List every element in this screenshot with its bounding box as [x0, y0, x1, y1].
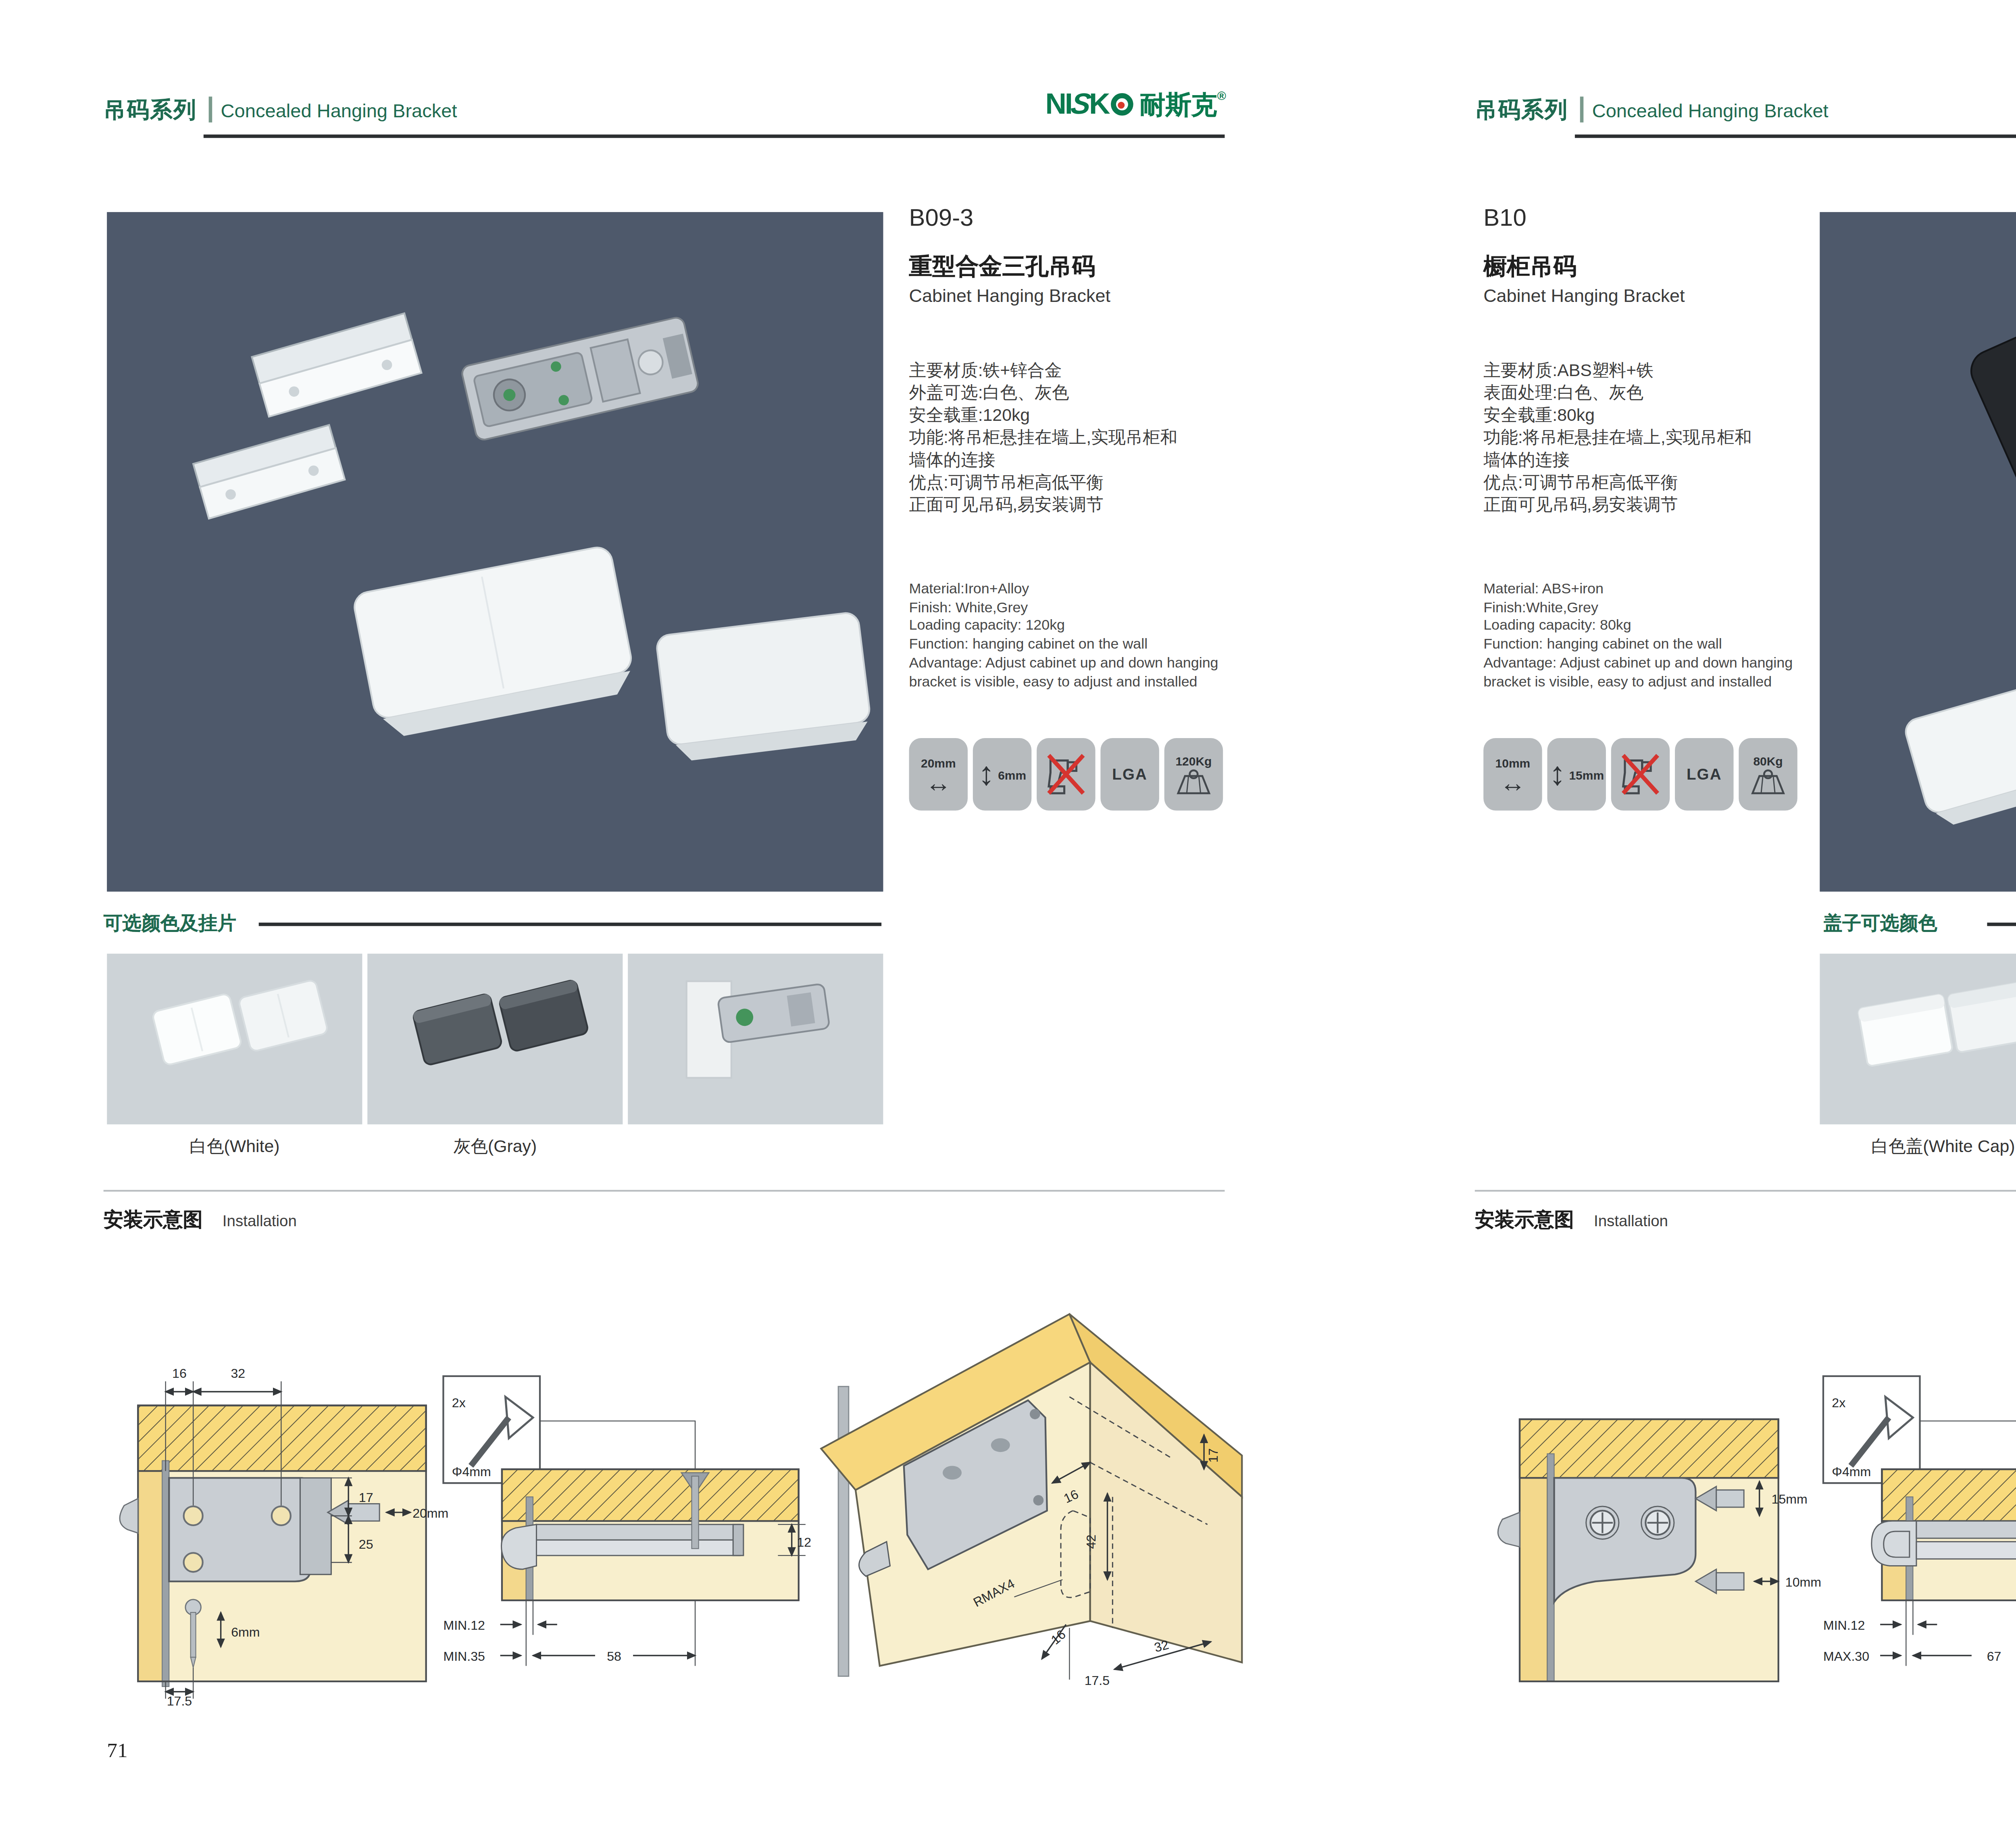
spec-line: bracket is visible, easy to adjust and i…: [1483, 672, 1793, 690]
spec-line: Finish: White,Grey: [909, 598, 1218, 616]
load-value: 80Kg: [1753, 755, 1783, 767]
specs-zh: 主要材质:铁+锌合金 外盖可选:白色、灰色 安全载重:120kg 功能:将吊柜悬…: [909, 359, 1178, 516]
install-diagram-front-section: 15mm 10mm: [1478, 1319, 1832, 1708]
page-number: 71: [107, 1738, 127, 1764]
color-swatch-gray: [367, 954, 623, 1125]
icon-tile-no-drill: [1037, 738, 1095, 811]
lga-cert-label: LGA: [1687, 765, 1722, 783]
spec-line: Finish:White,Grey: [1483, 598, 1793, 616]
color-swatch-bracket: [628, 954, 883, 1125]
swatch-label: 灰色(Gray): [367, 1135, 623, 1159]
spec-line: 功能:将吊柜悬挂在墙上,实现吊柜和: [1483, 426, 1752, 449]
lga-cert-label: LGA: [1112, 765, 1148, 783]
width-value: 20mm: [921, 756, 956, 768]
spec-line: Loading capacity: 120kg: [909, 616, 1218, 635]
colors-section-title: 盖子可选颜色: [1823, 911, 1937, 936]
series-title: 吊码系列: [104, 95, 197, 126]
svg-text:MAX.30: MAX.30: [1823, 1649, 1869, 1664]
swatch-label: 白色盖(White Cap): [1820, 1135, 2016, 1159]
specs-en: Material: ABS+iron Finish:White,Grey Loa…: [1483, 579, 1793, 690]
product-photo-illustration: [1820, 212, 2016, 892]
product-code: B09-3: [909, 204, 974, 231]
svg-text:58: 58: [607, 1649, 621, 1664]
wall-pole: [838, 1387, 849, 1676]
svg-text:MIN.12: MIN.12: [1823, 1618, 1865, 1633]
catalog-page-left: 吊码系列 Concealed Hanging Bracket NISK耐斯克®: [0, 0, 1371, 1847]
horizontal-arrow-icon: ↔: [1500, 770, 1526, 792]
color-swatch-white: [107, 954, 362, 1125]
spec-line: Advantage: Adjust cabinet up and down ha…: [909, 653, 1218, 672]
section-divider: [104, 1190, 1225, 1192]
spec-line: 墙体的连接: [1483, 448, 1752, 471]
install-diagram-front-section: 16 32 17 25 20mm 6mm 17.5: [107, 1319, 452, 1708]
spec-line: Advantage: Adjust cabinet up and down ha…: [1483, 653, 1793, 672]
icon-tile-height: ↕ 6mm: [973, 738, 1031, 811]
svg-text:10mm: 10mm: [1785, 1575, 1821, 1589]
spec-line: 安全载重:120kg: [909, 404, 1178, 426]
spec-line: 表面处理:白色、灰色: [1483, 381, 1752, 404]
product-title-en: Cabinet Hanging Bracket: [1483, 285, 1685, 305]
svg-text:Φ4mm: Φ4mm: [1832, 1464, 1871, 1479]
product-title-en: Cabinet Hanging Bracket: [909, 285, 1110, 305]
icon-tile-width: 20mm ↔: [909, 738, 968, 811]
svg-text:2x: 2x: [452, 1396, 466, 1410]
svg-text:2x: 2x: [1832, 1396, 1845, 1410]
svg-text:17: 17: [359, 1490, 373, 1505]
spec-line: bracket is visible, easy to adjust and i…: [909, 672, 1218, 690]
spec-line: Loading capacity: 80kg: [1483, 616, 1793, 635]
screw-spec-box: 2x Φ4mm: [1823, 1376, 1920, 1483]
leader-line: [540, 1421, 695, 1469]
svg-text:Φ4mm: Φ4mm: [452, 1464, 491, 1479]
leader-line: [1920, 1421, 2016, 1469]
height-value: 15mm: [1569, 768, 1604, 780]
product-photo-panel: [1820, 212, 2016, 892]
colors-section-title: 可选颜色及挂片: [104, 911, 236, 936]
svg-text:17.5: 17.5: [1085, 1673, 1110, 1688]
spec-line: 正面可见吊码,易安装调节: [909, 493, 1178, 516]
icon-tile-cert: LGA: [1100, 738, 1159, 811]
icon-tile-width: 10mm ↔: [1483, 738, 1542, 811]
specs-en: Material:Iron+Alloy Finish: White,Grey L…: [909, 579, 1218, 690]
svg-text:42: 42: [1084, 1535, 1098, 1549]
svg-text:16: 16: [172, 1366, 187, 1381]
svg-text:17.5: 17.5: [167, 1694, 192, 1707]
section-divider: [1475, 1190, 2016, 1192]
spec-line: Material: ABS+iron: [1483, 579, 1793, 598]
icon-tile-load: 120Kg: [1164, 738, 1223, 811]
icon-tile-load: 80Kg: [1739, 738, 1797, 811]
install-title-zh: 安装示意图: [1475, 1207, 1574, 1233]
product-photo-panel: [107, 212, 883, 892]
spec-line: 主要材质:铁+锌合金: [909, 359, 1178, 381]
icon-tile-no-drill: [1611, 738, 1670, 811]
spec-line: Function: hanging cabinet on the wall: [909, 635, 1218, 653]
hanger-hook: [1498, 1512, 1520, 1547]
svg-text:17: 17: [1206, 1448, 1220, 1463]
header-divider-bar: [209, 97, 211, 123]
load-value: 120Kg: [1175, 755, 1212, 767]
color-swatch-white-cap: [1820, 954, 2016, 1125]
install-diagram-side-section: 2x Φ4mm: [1820, 1359, 2016, 1678]
hanging-rail: [1872, 1521, 2016, 1566]
product-title-zh: 橱柜吊码: [1483, 252, 1577, 283]
screw-spec-box: 2x Φ4mm: [443, 1376, 540, 1483]
colors-section-rule: [259, 923, 881, 926]
white-caps-illustration: [107, 954, 362, 1125]
white-cover-2: [656, 612, 873, 763]
weight-icon: [1749, 768, 1787, 794]
swatch-label: 白色(White): [107, 1135, 362, 1159]
spec-line: 安全载重:80kg: [1483, 404, 1752, 426]
install-title-en: Installation: [223, 1211, 297, 1229]
spec-line: 优点:可调节吊柜高低平衡: [909, 471, 1178, 493]
white-caps-illustration: [1820, 954, 2016, 1125]
product-photo-illustration: [107, 212, 883, 892]
svg-text:15mm: 15mm: [1772, 1492, 1808, 1507]
no-drill-icon: [1620, 752, 1661, 797]
product-title-zh: 重型合金三孔吊码: [909, 252, 1095, 283]
svg-text:32: 32: [231, 1366, 246, 1381]
icon-tile-height: ↕ 15mm: [1547, 738, 1606, 811]
svg-text:12: 12: [797, 1535, 810, 1550]
spec-line: 功能:将吊柜悬挂在墙上,实现吊柜和: [909, 426, 1178, 449]
spec-line: 优点:可调节吊柜高低平衡: [1483, 471, 1752, 493]
height-value: 6mm: [998, 768, 1026, 780]
svg-text:67: 67: [1987, 1649, 2001, 1664]
spec-line: 外盖可选:白色、灰色: [909, 381, 1178, 404]
feature-icons: 20mm ↔ ↕ 6mm LGA: [909, 738, 1223, 811]
colors-section-rule: [1987, 923, 2016, 926]
svg-text:MIN.35: MIN.35: [443, 1649, 485, 1664]
specs-zh: 主要材质:ABS塑料+铁 表面处理:白色、灰色 安全载重:80kg 功能:将吊柜…: [1483, 359, 1752, 516]
weight-icon: [1175, 768, 1212, 794]
spec-line: Material:Iron+Alloy: [909, 579, 1218, 598]
install-title-en: Installation: [1594, 1211, 1668, 1229]
install-diagram-isometric: 17 16 42 RMAX4 16 17.5 32: [811, 1290, 1268, 1704]
spec-line: 正面可见吊码,易安装调节: [1483, 493, 1752, 516]
svg-text:6mm: 6mm: [231, 1625, 260, 1639]
product-info: B10 橱柜吊码 Cabinet Hanging Bracket 主要材质:AB…: [1483, 0, 1814, 897]
vertical-arrow-icon: ↕: [1549, 757, 1566, 792]
catalog-spread: 吊码系列 Concealed Hanging Bracket NISK耐斯克®: [0, 0, 2016, 1847]
series-subtitle: Concealed Hanging Bracket: [221, 100, 457, 121]
gray-caps-illustration: [367, 954, 623, 1125]
width-value: 10mm: [1495, 756, 1531, 768]
horizontal-arrow-icon: ↔: [925, 770, 951, 792]
install-title-zh: 安装示意图: [104, 1207, 203, 1233]
hanger-hook: [120, 1499, 138, 1533]
catalog-page-right: 吊码系列 Concealed Hanging Bracket NISK耐斯克®: [1371, 0, 2016, 1847]
install-diagram-side-section: 2x Φ4mm: [440, 1359, 811, 1678]
product-code: B10: [1483, 204, 1527, 231]
feature-icons: 10mm ↔ ↕ 15mm LGA: [1483, 738, 1797, 811]
svg-text:25: 25: [359, 1537, 373, 1552]
no-drill-icon: [1045, 752, 1087, 797]
bracket-illustration: [628, 954, 883, 1125]
spec-line: Function: hanging cabinet on the wall: [1483, 635, 1793, 653]
icon-tile-cert: LGA: [1675, 738, 1733, 811]
svg-text:MIN.12: MIN.12: [443, 1618, 485, 1633]
spec-line: 墙体的连接: [909, 448, 1178, 471]
spec-line: 主要材质:ABS塑料+铁: [1483, 359, 1752, 381]
product-info: B09-3 重型合金三孔吊码 Cabinet Hanging Bracket 主…: [909, 0, 1240, 897]
vertical-arrow-icon: ↕: [978, 757, 995, 792]
